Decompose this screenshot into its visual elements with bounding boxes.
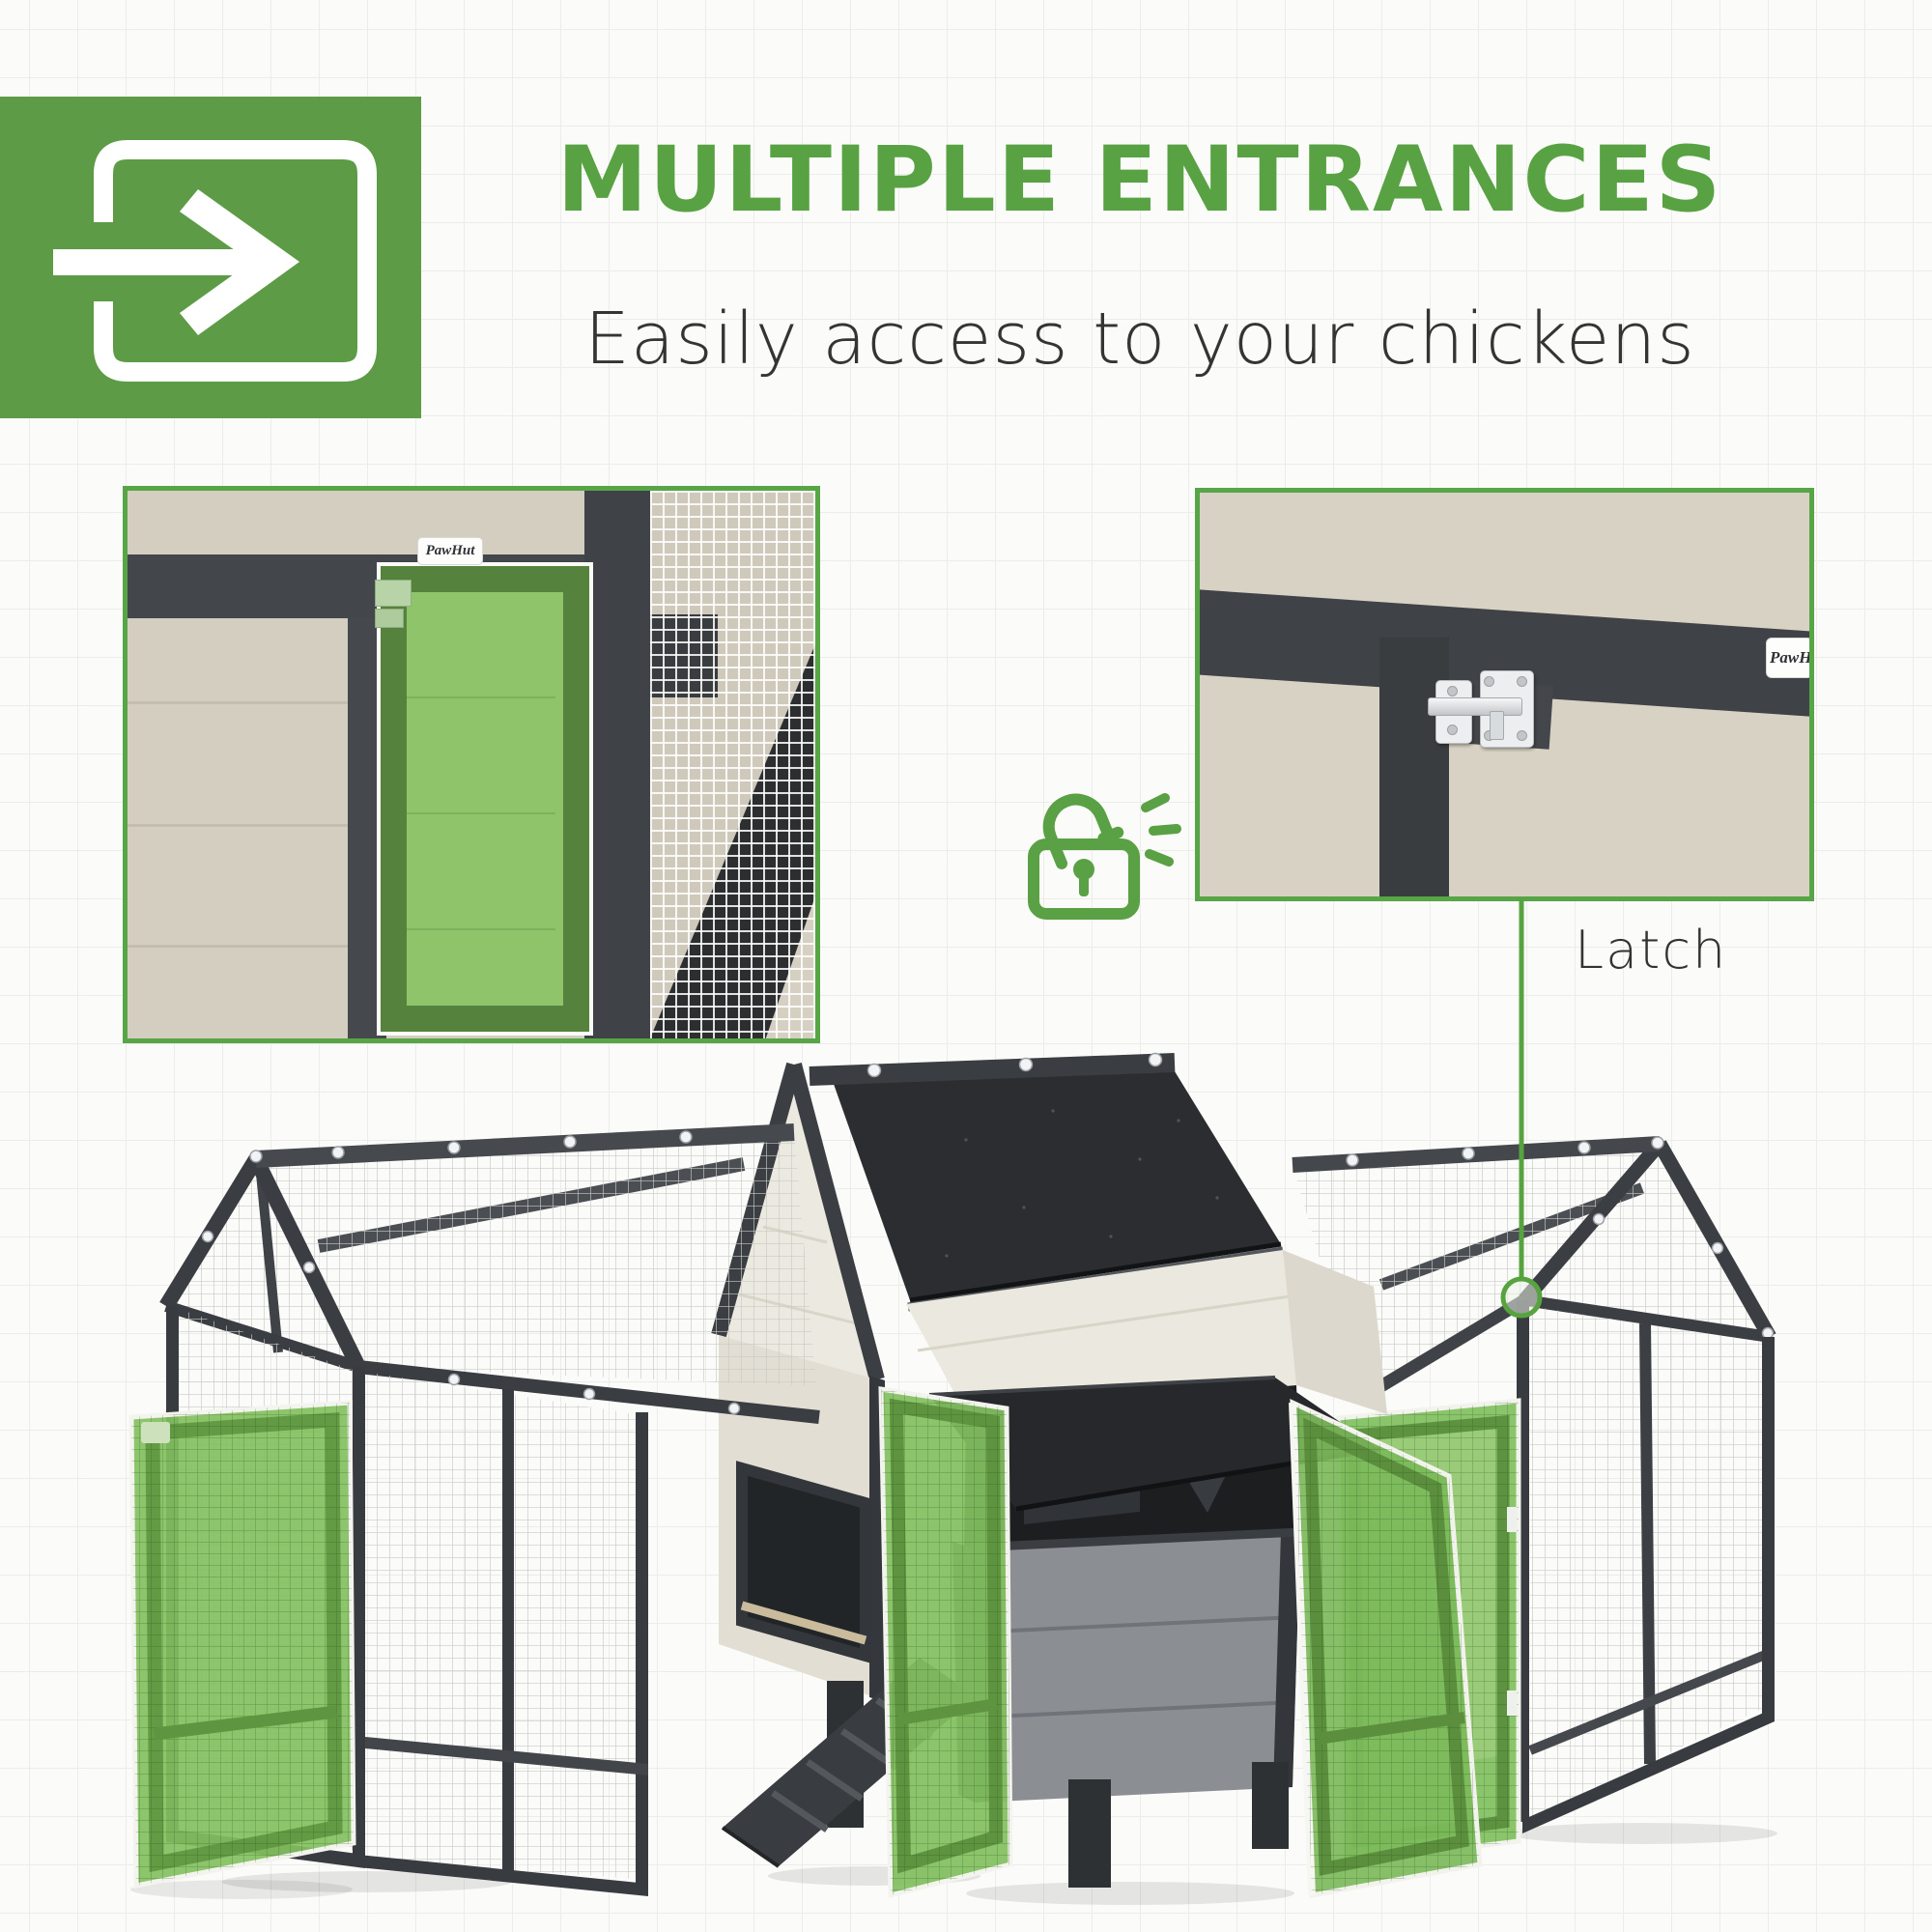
door-latch-hardware: [375, 609, 404, 628]
screw: [1447, 686, 1458, 696]
hinge: [1507, 1507, 1517, 1532]
screw: [1517, 676, 1527, 687]
ridge-cap: [810, 1063, 1175, 1076]
latch-bolt: [1428, 697, 1522, 716]
door-latch-tab: [141, 1422, 170, 1443]
inset-latch-closeup: PawHut: [1195, 488, 1814, 901]
enter-arrow-icon: [0, 97, 421, 418]
page-subtitle: Easily access to your chickens: [406, 298, 1874, 381]
screw: [1517, 730, 1527, 741]
brand-badge-label: PawHut: [1770, 648, 1813, 668]
plank-seam: [128, 701, 348, 704]
left-run: [130, 1131, 819, 1899]
brand-badge-label: PawHut: [426, 543, 475, 559]
unlock-motion-dashes: [1146, 798, 1177, 862]
screw: [1484, 676, 1494, 687]
plank-seam: [128, 824, 348, 827]
chicken-coop-render: [58, 896, 1874, 1922]
latch-hardware: [1434, 668, 1569, 761]
latch-handle: [1490, 711, 1504, 740]
door-latch-hardware: [375, 580, 412, 607]
arrow-glyph: [53, 189, 299, 335]
coop-side-opening: [742, 1468, 866, 1656]
coop-door-left-highlighted: [881, 1389, 1010, 1895]
hinge: [1507, 1690, 1517, 1716]
brand-badge: PawHut: [417, 537, 483, 565]
latch-marker-circle: [1503, 1279, 1540, 1316]
page-title: MULTIPLE ENTRANCES: [406, 128, 1874, 233]
padlock-shackle: [1040, 787, 1121, 864]
run-open-door-highlighted: [130, 1403, 354, 1899]
run-side-mesh: [365, 1372, 636, 1879]
brand-badge-clipped: PawHut: [1766, 638, 1813, 678]
enter-icon-block: [0, 97, 421, 418]
padlock-keyhole: [1073, 859, 1094, 896]
screw: [1447, 724, 1458, 735]
